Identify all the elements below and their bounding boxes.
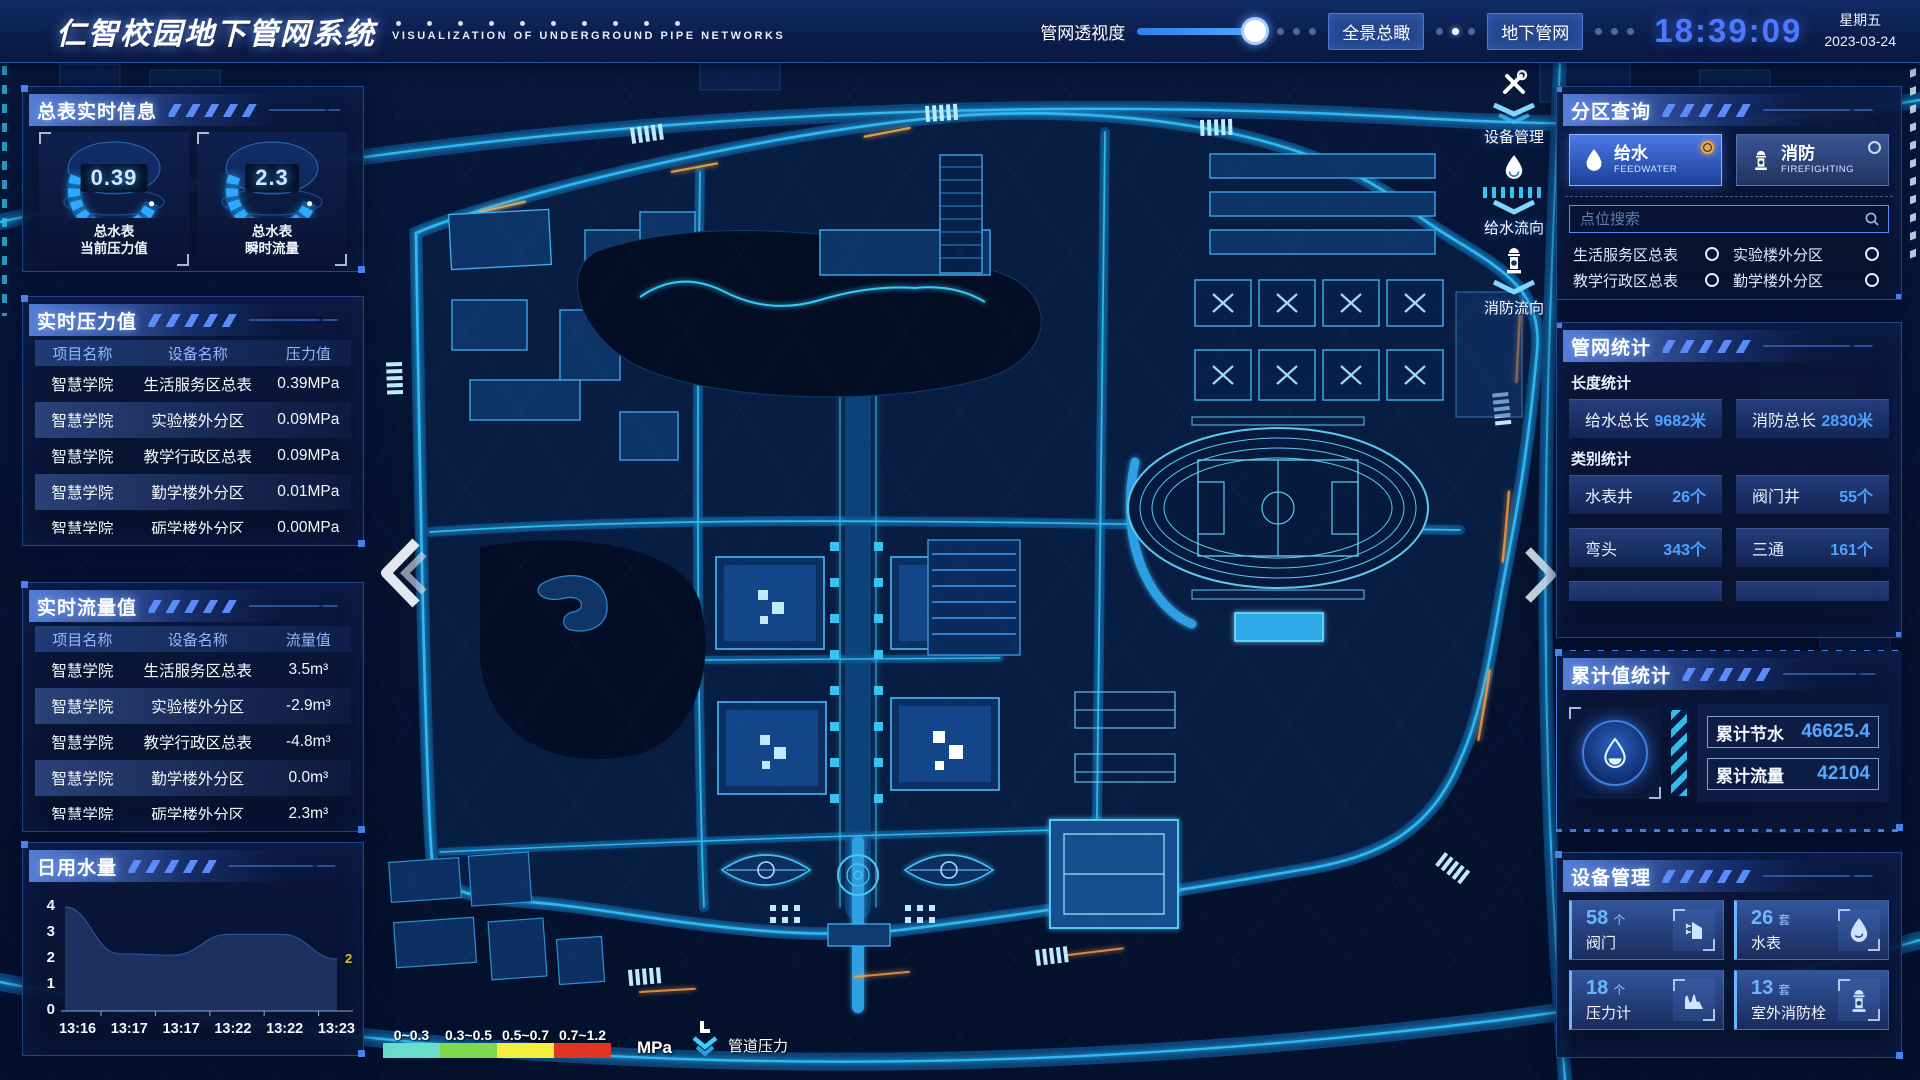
panel-device-management: 设备管理 58个 阀门 26套 水表 18个 xyxy=(1556,852,1902,1058)
wrench-icon xyxy=(1499,68,1529,98)
tool-label: 给水流向 xyxy=(1468,217,1560,238)
hydrant-icon xyxy=(1751,148,1771,172)
pipe-pressure-icon[interactable] xyxy=(690,1018,720,1058)
hydrant-icon xyxy=(1848,987,1870,1013)
dot-separator xyxy=(1436,28,1475,35)
panel-header: 设备管理 xyxy=(1563,860,1895,892)
legend-range: 0.5~0.7 xyxy=(497,1027,554,1043)
radio-ring[interactable] xyxy=(1865,299,1879,300)
app-subtitle: VISUALIZATION OF UNDERGROUND PIPE NETWOR… xyxy=(392,30,785,42)
legend-unit: MPa xyxy=(637,1038,672,1058)
table-header: 项目名称设备名称压力值 xyxy=(35,340,351,366)
gauge-label: 总水表 xyxy=(39,223,189,241)
dot-separator xyxy=(1277,28,1316,35)
stat-fire-length: 消防总长2830米 xyxy=(1736,399,1889,438)
y-axis-ticks: 4 3 2 1 0 xyxy=(33,893,55,1023)
water-drop-icon xyxy=(1584,148,1604,172)
hydrant-icon xyxy=(1502,245,1526,275)
chevron-down-icon xyxy=(1491,103,1537,125)
device-card-water-meters[interactable]: 26套 水表 xyxy=(1734,900,1889,960)
header-dots xyxy=(392,21,785,26)
panel-pipe-stats: 管网统计 长度统计 给水总长9682米 消防总长2830米 类别统计 水表井26… xyxy=(1556,322,1902,638)
chevron-down-icon xyxy=(1491,200,1537,216)
point-item[interactable]: 实验楼外分区 xyxy=(1729,244,1889,265)
panel-header: 实时流量值 xyxy=(29,590,357,622)
panel-header: 分区查询 xyxy=(1563,94,1895,126)
app-title: 仁智校园地下管网系统 xyxy=(56,9,376,53)
point-item[interactable]: 教学行政区总表 xyxy=(1569,270,1729,291)
slash-decoration xyxy=(1662,104,1751,117)
table-row: 智慧学院生活服务区总表0.39MPa xyxy=(35,366,351,402)
legend-swatch xyxy=(440,1043,497,1058)
table-row: 智慧学院实验楼外分区0.09MPa xyxy=(35,402,351,438)
legend-swatch xyxy=(497,1043,554,1058)
panel-title: 管网统计 xyxy=(1571,333,1651,360)
pipe-opacity-label: 管网透视度 xyxy=(1040,19,1125,44)
date: 2023-03-24 xyxy=(1824,31,1896,52)
water-meter-icon xyxy=(1848,917,1870,943)
panel-header: 总表实时信息 xyxy=(29,94,357,126)
panel-title: 总表实时信息 xyxy=(37,97,157,124)
table-row: 智慧学院勤学楼外分区0.01MPa xyxy=(35,474,351,510)
stat-tees: 三通161个 xyxy=(1736,528,1889,567)
gauge-value: 2.3 xyxy=(245,164,299,192)
valve-icon xyxy=(1682,918,1706,942)
tab-firefighting[interactable]: 消防 FIREFIGHTING xyxy=(1736,134,1889,186)
stat-clipped xyxy=(1569,581,1722,601)
table-row: 智慧学院教学行政区总表0.09MPa xyxy=(35,438,351,474)
gauge-label: 总水表 xyxy=(197,223,347,241)
device-card-valves[interactable]: 58个 阀门 xyxy=(1569,900,1724,960)
overview-button[interactable]: 全景总瞰 xyxy=(1328,13,1424,50)
pressure-gauge-icon xyxy=(1682,988,1706,1012)
stripe-decoration xyxy=(1483,187,1545,198)
panel-title: 分区查询 xyxy=(1571,97,1651,124)
panel-meter-info: 总表实时信息 0.39 总水表 当前压力值 xyxy=(22,86,364,272)
panel-header: 日用水量 xyxy=(29,850,357,882)
panel-daily-water: 日用水量 4 3 2 1 0 2 13:16 13:17 13:17 13:22… xyxy=(22,842,364,1056)
slash-decoration xyxy=(1662,340,1751,353)
panel-zone-query: 分区查询 给水 FEEDWATER 消防 FIREFIGHTING xyxy=(1556,86,1902,300)
panel-title: 实时流量值 xyxy=(37,593,137,620)
gauge-label: 瞬时流量 xyxy=(197,240,347,258)
slash-decoration xyxy=(1662,870,1751,883)
table-row: 智慧学院勤学楼外分区0.0m³ xyxy=(35,760,351,796)
daily-water-chart: 2 xyxy=(61,899,357,1023)
gauge-main-pressure: 0.39 总水表 当前压力值 xyxy=(39,132,189,266)
map-tool-device-management[interactable]: 设备管理 xyxy=(1468,68,1560,147)
point-item[interactable]: 宿舍区泵房 xyxy=(1729,296,1889,301)
device-card-outdoor-hydrants[interactable]: 13套 室外消防栓 xyxy=(1734,970,1889,1030)
slash-decoration xyxy=(148,314,237,327)
table-header: 项目名称设备名称流量值 xyxy=(35,626,351,652)
tab-label: 消防 xyxy=(1781,145,1854,164)
carousel-left-arrow[interactable] xyxy=(372,536,430,610)
legend-swatch xyxy=(554,1043,611,1058)
radio-ring[interactable] xyxy=(1865,247,1879,261)
panel-header: 实时压力值 xyxy=(29,304,357,336)
panel-title: 实时压力值 xyxy=(37,307,137,334)
x-axis-ticks: 13:16 13:17 13:17 13:22 13:22 13:23 xyxy=(59,1021,355,1037)
stat-total-flow: 累计流量42104 xyxy=(1707,758,1879,790)
radio-unselected[interactable] xyxy=(1868,141,1881,154)
search-input[interactable] xyxy=(1578,210,1864,229)
panel-title: 累计值统计 xyxy=(1571,661,1671,688)
stat-elbows: 弯头343个 xyxy=(1569,528,1722,567)
underground-pipes-button[interactable]: 地下管网 xyxy=(1487,13,1583,50)
stat-valve-wells: 阀门井55个 xyxy=(1736,475,1889,514)
gauge-label: 当前压力值 xyxy=(39,240,189,258)
legend-color-bar xyxy=(383,1043,611,1058)
point-item[interactable]: 生活服务区总表 xyxy=(1569,244,1729,265)
stat-water-meter-wells: 水表井26个 xyxy=(1569,475,1722,514)
tab-feedwater[interactable]: 给水 FEEDWATER xyxy=(1569,134,1722,186)
water-badge xyxy=(1569,707,1661,799)
map-tool-water-flow[interactable]: 给水流向 xyxy=(1468,154,1560,238)
water-drop-icon xyxy=(1503,154,1525,180)
device-card-pressure-gauges[interactable]: 18个 压力计 xyxy=(1569,970,1724,1030)
slash-decoration xyxy=(168,104,257,117)
table-row: 智慧学院教学行政区总表-4.8m³ xyxy=(35,724,351,760)
point-search-box xyxy=(1569,205,1889,233)
clock-time: 18:39:09 xyxy=(1654,12,1802,50)
radio-ring[interactable] xyxy=(1705,247,1719,261)
radio-ring[interactable] xyxy=(1705,273,1719,287)
panel-header: 管网统计 xyxy=(1563,330,1895,362)
stripe-decoration xyxy=(1671,710,1687,796)
top-header: 仁智校园地下管网系统 VISUALIZATION OF UNDERGROUND … xyxy=(0,0,1920,63)
legend-pressure-label: 管道压力 xyxy=(728,1035,788,1056)
gauge-value: 0.39 xyxy=(81,164,148,192)
stat-clipped xyxy=(1736,581,1889,601)
radio-ring[interactable] xyxy=(1705,299,1719,300)
water-drop-icon xyxy=(1602,738,1628,768)
chevron-down-icon xyxy=(1491,280,1537,296)
table-row: 智慧学院实验楼外分区-2.9m³ xyxy=(35,688,351,724)
panel-realtime-pressure: 实时压力值 项目名称设备名称压力值 智慧学院生活服务区总表0.39MPa 智慧学… xyxy=(22,296,364,546)
pipe-opacity-slider[interactable] xyxy=(1137,28,1265,35)
stat-water-saved: 累计节水46625.4 xyxy=(1707,716,1879,748)
panel-title: 设备管理 xyxy=(1571,863,1651,890)
slash-decoration xyxy=(1682,668,1771,681)
legend-range: 0.7~1.2 xyxy=(554,1027,611,1043)
stat-feedwater-length: 给水总长9682米 xyxy=(1569,399,1722,438)
table-row: 智慧学院砺学楼外分区0.00MPa xyxy=(35,510,351,534)
tab-label: 给水 xyxy=(1614,145,1677,164)
panel-title: 日用水量 xyxy=(37,853,117,880)
svg-text:2: 2 xyxy=(345,951,352,966)
dot-separator xyxy=(1595,28,1634,35)
table-row: 智慧学院生活服务区总表3.5m³ xyxy=(35,652,351,688)
slash-decoration xyxy=(148,600,237,613)
tool-label: 消防流向 xyxy=(1468,297,1560,318)
gauge-instant-flow: 2.3 总水表 瞬时流量 xyxy=(197,132,347,266)
tool-label: 设备管理 xyxy=(1468,126,1560,147)
legend-range: 0~0.3 xyxy=(383,1027,440,1043)
tab-sublabel: FEEDWATER xyxy=(1614,164,1677,175)
tab-sublabel: FIREFIGHTING xyxy=(1781,164,1854,175)
slash-decoration xyxy=(128,860,217,873)
search-icon[interactable] xyxy=(1864,211,1880,227)
radio-ring[interactable] xyxy=(1865,273,1879,287)
point-item[interactable]: 砺学楼外分区 xyxy=(1569,296,1729,301)
length-stats-label: 长度统计 xyxy=(1571,372,1887,393)
slider-knob[interactable] xyxy=(1241,17,1269,45)
legend-range: 0.3~0.5 xyxy=(440,1027,497,1043)
panel-cumulative: 累计值统计 累计节水46625.4 累计流量42104 xyxy=(1556,650,1902,832)
panel-header: 累计值统计 xyxy=(1563,658,1895,690)
pressure-legend: 0~0.3 0.3~0.5 0.5~0.7 0.7~1.2 MPa 管道压力 xyxy=(383,1018,788,1058)
dashed-divider xyxy=(1565,196,1893,197)
table-row: 智慧学院砺学楼外分区2.3m³ xyxy=(35,796,351,820)
left-edge-decoration xyxy=(2,66,7,316)
map-tool-fire-flow[interactable]: 消防流向 xyxy=(1468,245,1560,318)
panel-realtime-flow: 实时流量值 项目名称设备名称流量值 智慧学院生活服务区总表3.5m³ 智慧学院实… xyxy=(22,582,364,832)
legend-swatch xyxy=(383,1043,440,1058)
right-edge-decoration xyxy=(1910,34,1916,264)
category-stats-label: 类别统计 xyxy=(1571,448,1887,469)
slider-fill xyxy=(1137,28,1257,35)
weekday: 星期五 xyxy=(1824,10,1896,31)
radio-selected[interactable] xyxy=(1701,141,1714,154)
point-item[interactable]: 勤学楼外分区 xyxy=(1729,270,1889,291)
